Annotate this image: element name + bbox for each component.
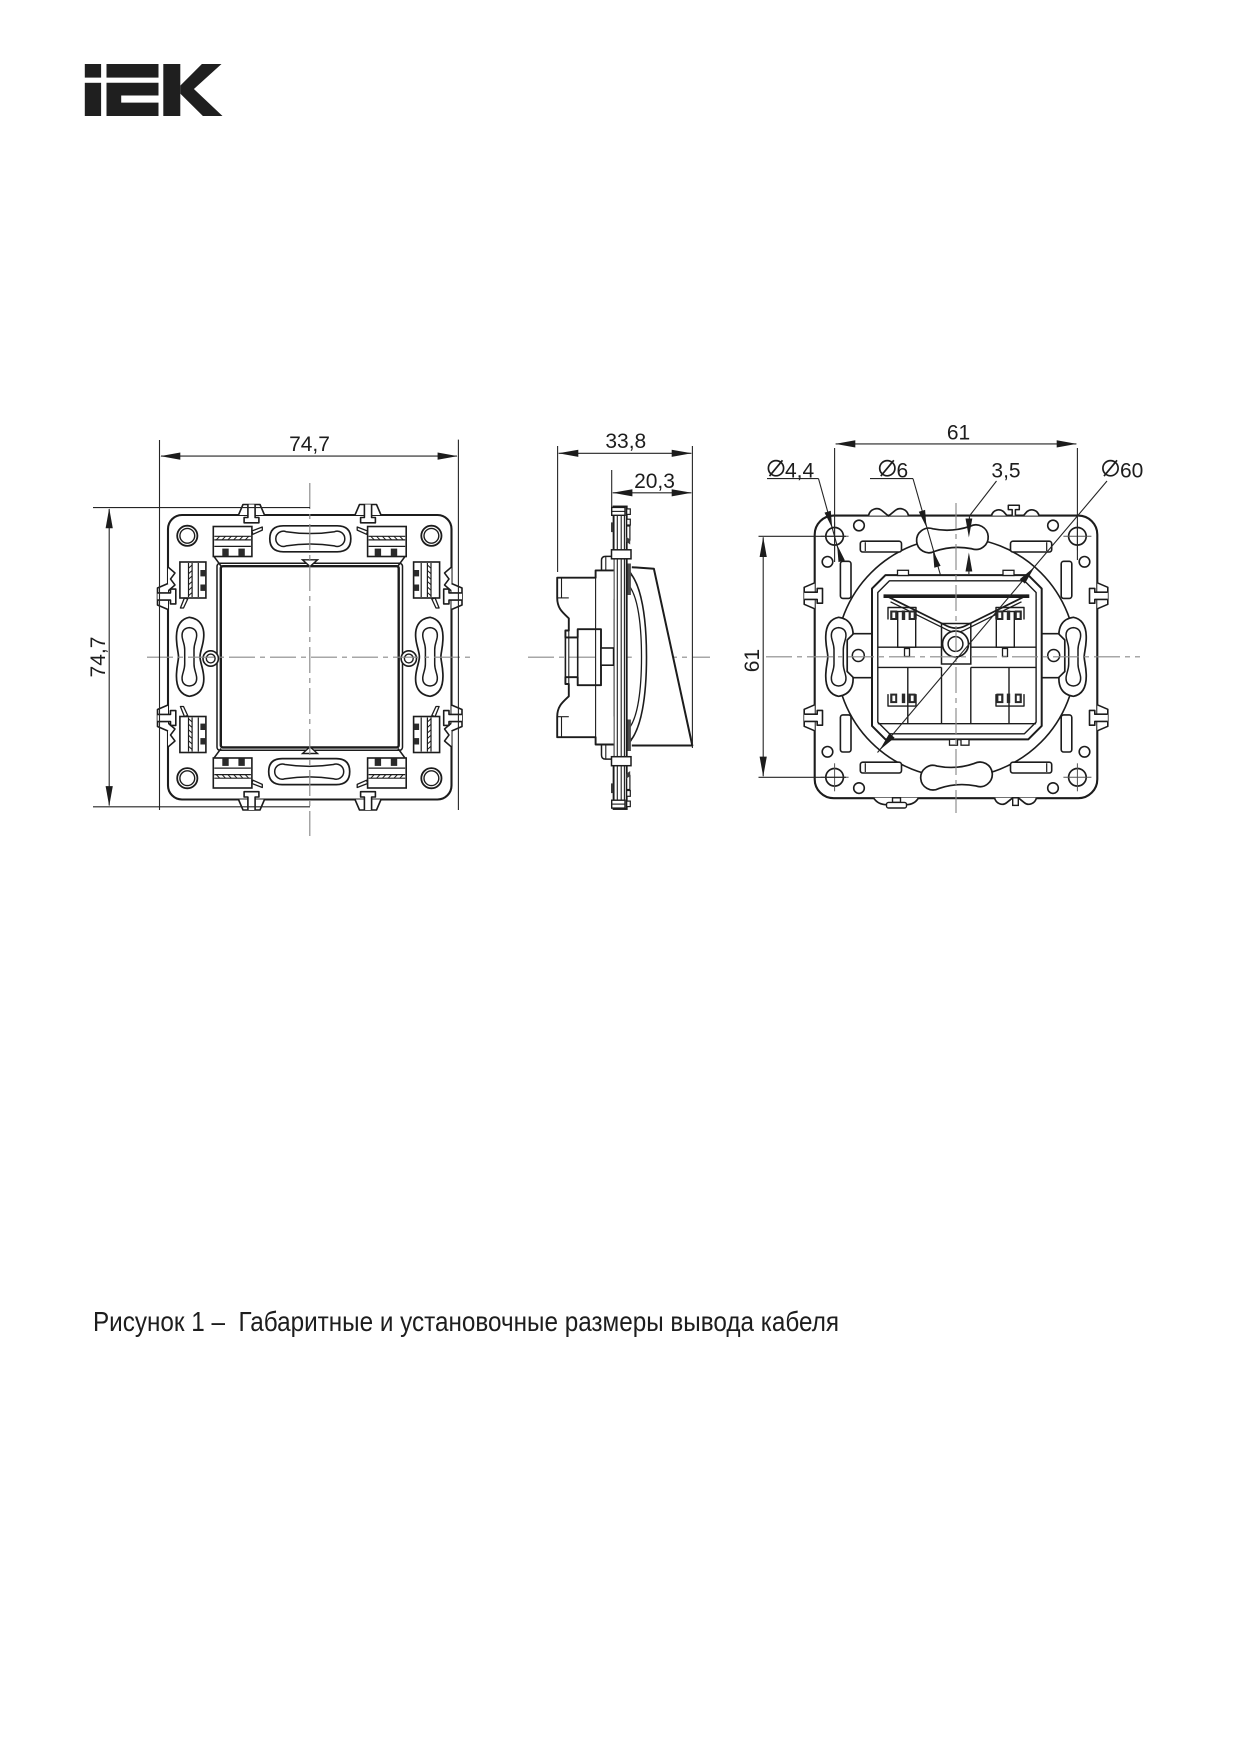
svg-text:3,5: 3,5 [991, 459, 1020, 482]
svg-text:61: 61 [741, 649, 764, 672]
svg-text:Рисунок 1 – Габаритные и уста: Рисунок 1 – Габаритные и установочные ра… [93, 1306, 839, 1337]
svg-text:61: 61 [947, 421, 970, 444]
svg-text:20,3: 20,3 [634, 470, 675, 493]
svg-text:33,8: 33,8 [605, 430, 646, 453]
svg-text:74,7: 74,7 [87, 637, 110, 678]
svg-text:74,7: 74,7 [289, 433, 330, 456]
svg-text:60: 60 [1120, 459, 1143, 482]
